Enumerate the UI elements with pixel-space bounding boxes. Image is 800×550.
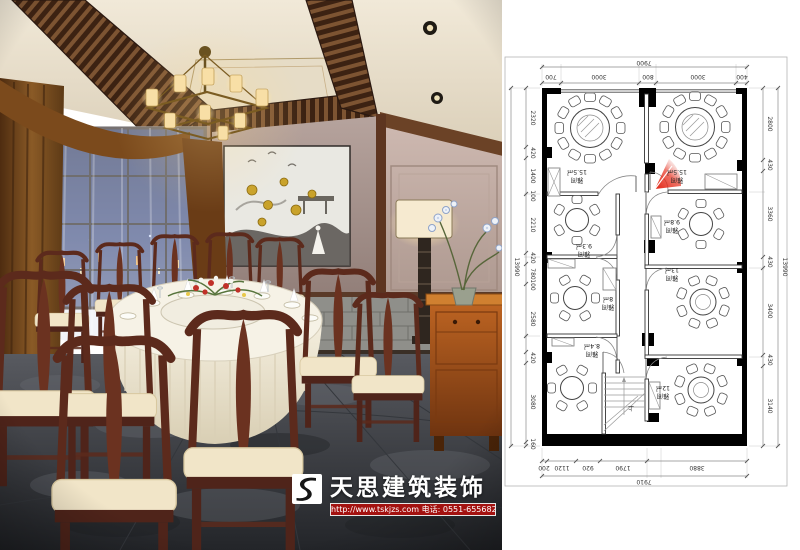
dim-left-seg: 2580: [529, 311, 536, 326]
room-label-name: 雅间: [671, 176, 683, 184]
floor-plan: 上: [500, 0, 800, 550]
dim-bottom-seg: 920: [582, 464, 594, 471]
room-label-name: 雅间: [571, 176, 583, 184]
dim-bottom-seg: 200: [538, 464, 550, 471]
dim-left-seg: 2210: [529, 217, 536, 232]
dim-top-seg: 3000: [591, 73, 606, 80]
dim-bottom-seg: 1120: [554, 464, 569, 471]
dim-top-seg: 700: [545, 73, 557, 80]
room-label-area: 9.8㎡: [663, 218, 680, 226]
dim-right-total: 13990: [781, 257, 788, 276]
logo-mark: [292, 474, 322, 504]
dim-bottom-seg: 3880: [689, 464, 704, 471]
stair-up-label: 上: [628, 404, 634, 412]
room-label-name: 雅间: [602, 303, 614, 311]
dim-left-seg: 420: [529, 147, 536, 159]
company-name: 天思建筑装饰: [330, 475, 496, 502]
dim-left-seg: 1400: [529, 168, 536, 183]
vignette: [0, 0, 503, 550]
room-label-name: 雅间: [578, 250, 590, 258]
dim-left-seg: 780: [529, 268, 536, 280]
dim-left-seg: 420: [529, 352, 536, 364]
room-label-area: 15.5㎡: [566, 168, 587, 176]
dim-right-seg: 3360: [766, 206, 773, 221]
dim-right-seg: 3140: [766, 398, 773, 413]
dim-top-seg: 3000: [690, 73, 705, 80]
dim-bottom-seg: 1790: [615, 464, 630, 471]
dim-right-seg: 430: [766, 159, 773, 171]
room-label-name: 雅间: [666, 274, 678, 282]
room-label-area: 8.4㎡: [583, 342, 600, 350]
company-website-bar: http://www.tskjzs.com 电话: 0551-65568226: [330, 503, 496, 516]
dim-left-seg: 100: [529, 279, 536, 291]
room-label-name: 雅间: [666, 226, 678, 234]
company-logo: 天思建筑装饰 http://www.tskjzs.com 电话: 0551-65…: [292, 474, 504, 516]
dim-right-seg: 430: [766, 256, 773, 268]
dim-top-seg: 800: [642, 73, 654, 80]
dim-right-seg: 2800: [766, 116, 773, 131]
dim-left-seg: 100: [529, 190, 536, 202]
dim-top-total: 7900: [636, 59, 651, 66]
room-label-area: 8㎡: [602, 295, 613, 303]
room-label-area: 9.3㎡: [575, 242, 592, 250]
room-label-area: 13㎡: [664, 266, 679, 274]
dim-right-seg: 430: [766, 354, 773, 366]
presentation-board: 上: [0, 0, 800, 550]
dim-left-seg: 3080: [529, 394, 536, 409]
dim-bottom-total: 7910: [636, 478, 651, 485]
room-label-area: 12㎡: [655, 384, 670, 392]
room-label-area: 15.5㎡: [666, 168, 687, 176]
dim-left-seg: 160: [529, 438, 536, 450]
dim-right-seg: 3400: [766, 303, 773, 318]
interior-render: [0, 0, 503, 550]
dim-top-seg: 400: [736, 73, 748, 80]
logo-s-glyph: [297, 478, 317, 501]
dim-left-total: 13990: [513, 257, 520, 276]
dim-left-seg: 2320: [529, 110, 536, 125]
dim-left-seg: 420: [529, 252, 536, 264]
room-label-name: 雅间: [586, 350, 598, 358]
room-label-name: 雅间: [657, 392, 669, 400]
